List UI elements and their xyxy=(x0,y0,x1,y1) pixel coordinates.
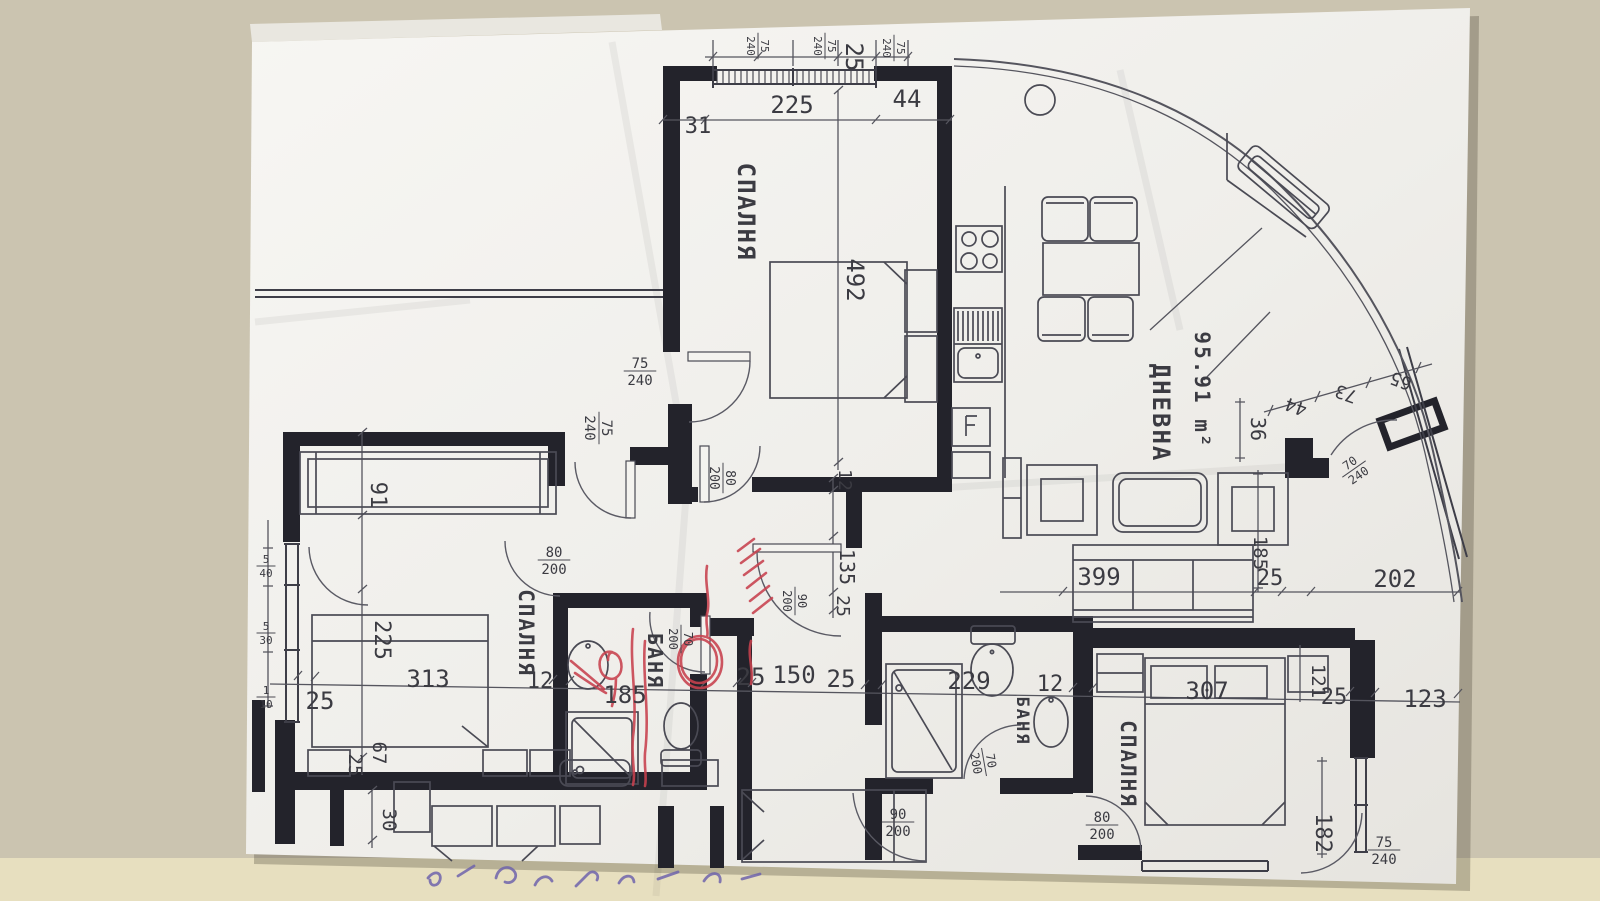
door-leaf-hall xyxy=(626,461,635,518)
wall-lower-unit-a xyxy=(658,806,674,868)
dimension-label: 36 xyxy=(1246,417,1270,441)
wall-bathroom2-bottom-right xyxy=(1000,778,1073,794)
wall-left-upper xyxy=(283,432,300,542)
dimension-label: 31 xyxy=(685,114,712,139)
fraction-numerator: 75 xyxy=(1376,835,1393,851)
fraction-numerator: 90 xyxy=(795,594,809,608)
fraction-denominator: 240 xyxy=(627,373,652,389)
fraction-denominator: 200 xyxy=(666,628,680,650)
room-label-living-room-area: 95.91 m² xyxy=(1190,331,1214,448)
dimension-label: 182 xyxy=(1310,813,1335,853)
dimension-label: 25 xyxy=(827,665,856,693)
dimension-label: 202 xyxy=(1373,565,1416,593)
dimension-label: 25 xyxy=(832,595,853,617)
door-leaf-living xyxy=(753,544,841,552)
wall-corridor-right-lower xyxy=(865,784,882,860)
fraction-denominator: 240 xyxy=(880,38,893,58)
fraction-denominator: 200 xyxy=(885,824,910,840)
dimension-label: 399 xyxy=(1077,563,1120,591)
wall-bathroom1-right xyxy=(690,674,707,790)
dimension-label: 25 xyxy=(306,687,335,715)
wall-bedroom3-right xyxy=(1350,640,1375,758)
fraction-denominator: 200 xyxy=(780,590,794,612)
dimension-label: 150 xyxy=(772,661,815,689)
dimension-label: 307 xyxy=(1185,677,1228,705)
wall-hall-top xyxy=(283,432,565,446)
wall-bathroom2-bottom-left xyxy=(865,778,933,794)
dimension-label: 313 xyxy=(406,665,449,693)
room-label-bedroom-2: СПАЛНЯ xyxy=(514,589,538,677)
fraction-numerator: 80 xyxy=(1094,810,1111,826)
room-label-living-room: ДНЕВНА xyxy=(1147,364,1175,463)
fraction-denominator: 240 xyxy=(744,36,757,56)
fraction-denominator: 240 xyxy=(811,36,824,56)
wall-hall-column-foot xyxy=(668,487,698,502)
fraction-numerator: 80 xyxy=(722,470,737,486)
room-label-bedroom-1: СПАЛНЯ xyxy=(732,163,760,262)
fraction-denominator: 240 xyxy=(581,415,597,440)
dimension-label: 67 xyxy=(368,742,390,765)
wall-bathroom1-top xyxy=(553,593,705,608)
door-leaf-bedroom1 xyxy=(688,352,750,361)
wall-livingroom-bottom xyxy=(1093,628,1355,648)
dimension-label: 135 xyxy=(835,549,859,585)
dimension-label: 185 xyxy=(1249,536,1271,570)
wall-bedroom1-left xyxy=(663,66,680,352)
fraction-numerator: 75 xyxy=(894,41,907,54)
wall-bedroom1-top-left xyxy=(663,66,717,81)
dimension-label: 225 xyxy=(369,620,394,660)
wall-lower-unit-b xyxy=(710,806,724,868)
room-label-bathroom-2: БАНЯ xyxy=(1012,697,1032,746)
dimension-label: 91 xyxy=(365,482,390,509)
fraction-numerator: 80 xyxy=(546,545,563,561)
wall-corridor-right-upper xyxy=(865,593,882,725)
fraction-numerator: 1 xyxy=(263,684,270,697)
fraction-denominator: 240 xyxy=(1371,852,1396,868)
dimension-label: 229 xyxy=(947,667,990,695)
wall-left-outer xyxy=(252,700,265,792)
fraction-denominator: 40 xyxy=(259,567,272,580)
fraction-denominator: 30 xyxy=(259,634,272,647)
wall-bedroom3-bottom-stub xyxy=(1078,845,1142,860)
wall-bedroom3-left xyxy=(1073,616,1093,793)
wall-left-lower xyxy=(275,720,295,844)
fraction-numerator: 5 xyxy=(263,620,270,633)
dimension-label: 185 xyxy=(603,681,646,709)
fraction-numerator: 75 xyxy=(632,356,649,372)
floor-plan-photo: 2254431254929122531312252567301852515025… xyxy=(0,0,1600,901)
fraction-denominator: 200 xyxy=(541,562,566,578)
dimension-label: 121 xyxy=(1307,664,1329,698)
fraction-numerator: 75 xyxy=(758,39,771,52)
fraction-numerator: 90 xyxy=(890,807,907,823)
fraction-denominator: 200 xyxy=(706,466,721,489)
fraction-numerator: 75 xyxy=(598,420,614,437)
wall-bathroom2-top xyxy=(865,616,1093,632)
fraction-denominator: 200 xyxy=(1089,827,1114,843)
dimension-label: 30 xyxy=(378,809,400,832)
wall-kitchen xyxy=(937,78,952,492)
dimension-label: 25 xyxy=(344,754,366,777)
fraction-denominator: 10 xyxy=(259,698,272,711)
wall-living-spur xyxy=(846,490,862,548)
dimension-label: 12 xyxy=(834,469,855,491)
fraction-numerator: 5 xyxy=(263,553,270,566)
fraction-numerator: 75 xyxy=(825,39,838,52)
wall-hall-column-arm xyxy=(630,447,668,465)
dimension-label: 12 xyxy=(1037,672,1064,697)
wall-balcony-divider xyxy=(330,790,344,846)
dimension-label: 44 xyxy=(893,85,922,113)
fraction-numerator: 70 xyxy=(681,632,695,646)
dimension-label: 123 xyxy=(1403,685,1446,713)
room-label-bathroom-1: БАНЯ xyxy=(643,633,667,689)
dimension-label: 25 xyxy=(840,43,868,72)
room-label-bedroom-3: СПАЛНЯ xyxy=(1116,720,1140,808)
dimension-label: 225 xyxy=(770,91,813,119)
dimension-label: 25 xyxy=(737,663,766,691)
dimension-label: 492 xyxy=(841,258,869,301)
